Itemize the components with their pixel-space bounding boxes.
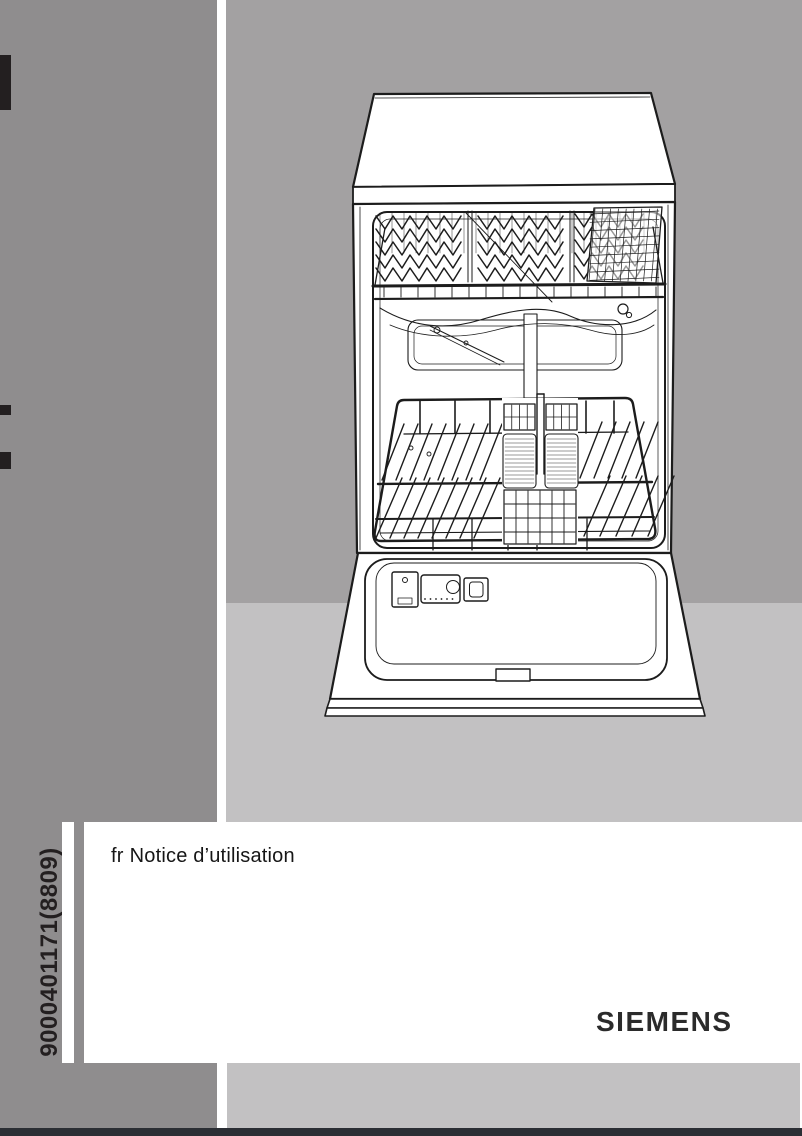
dishwasher-illustration bbox=[318, 82, 708, 727]
footer-gray-block-right bbox=[227, 1063, 800, 1128]
cutlery-basket bbox=[502, 394, 578, 545]
registration-mark bbox=[0, 452, 11, 469]
brand-wordmark: SIEMENS bbox=[596, 1006, 733, 1038]
manual-cover-page: 9000401171(8809) frNotice d’utilisation … bbox=[0, 0, 802, 1136]
footer-dark-band bbox=[0, 1128, 802, 1136]
footer-gray-block-left bbox=[0, 1063, 217, 1128]
language-code: fr bbox=[111, 845, 124, 867]
order-number-box: 9000401171(8809) bbox=[0, 837, 100, 1067]
registration-mark bbox=[0, 405, 11, 415]
title-line: frNotice d’utilisation bbox=[111, 845, 295, 868]
left-gray-column bbox=[0, 0, 217, 822]
registration-mark bbox=[0, 55, 11, 110]
order-number: 9000401171(8809) bbox=[36, 847, 64, 1057]
document-title: Notice d’utilisation bbox=[130, 845, 295, 867]
